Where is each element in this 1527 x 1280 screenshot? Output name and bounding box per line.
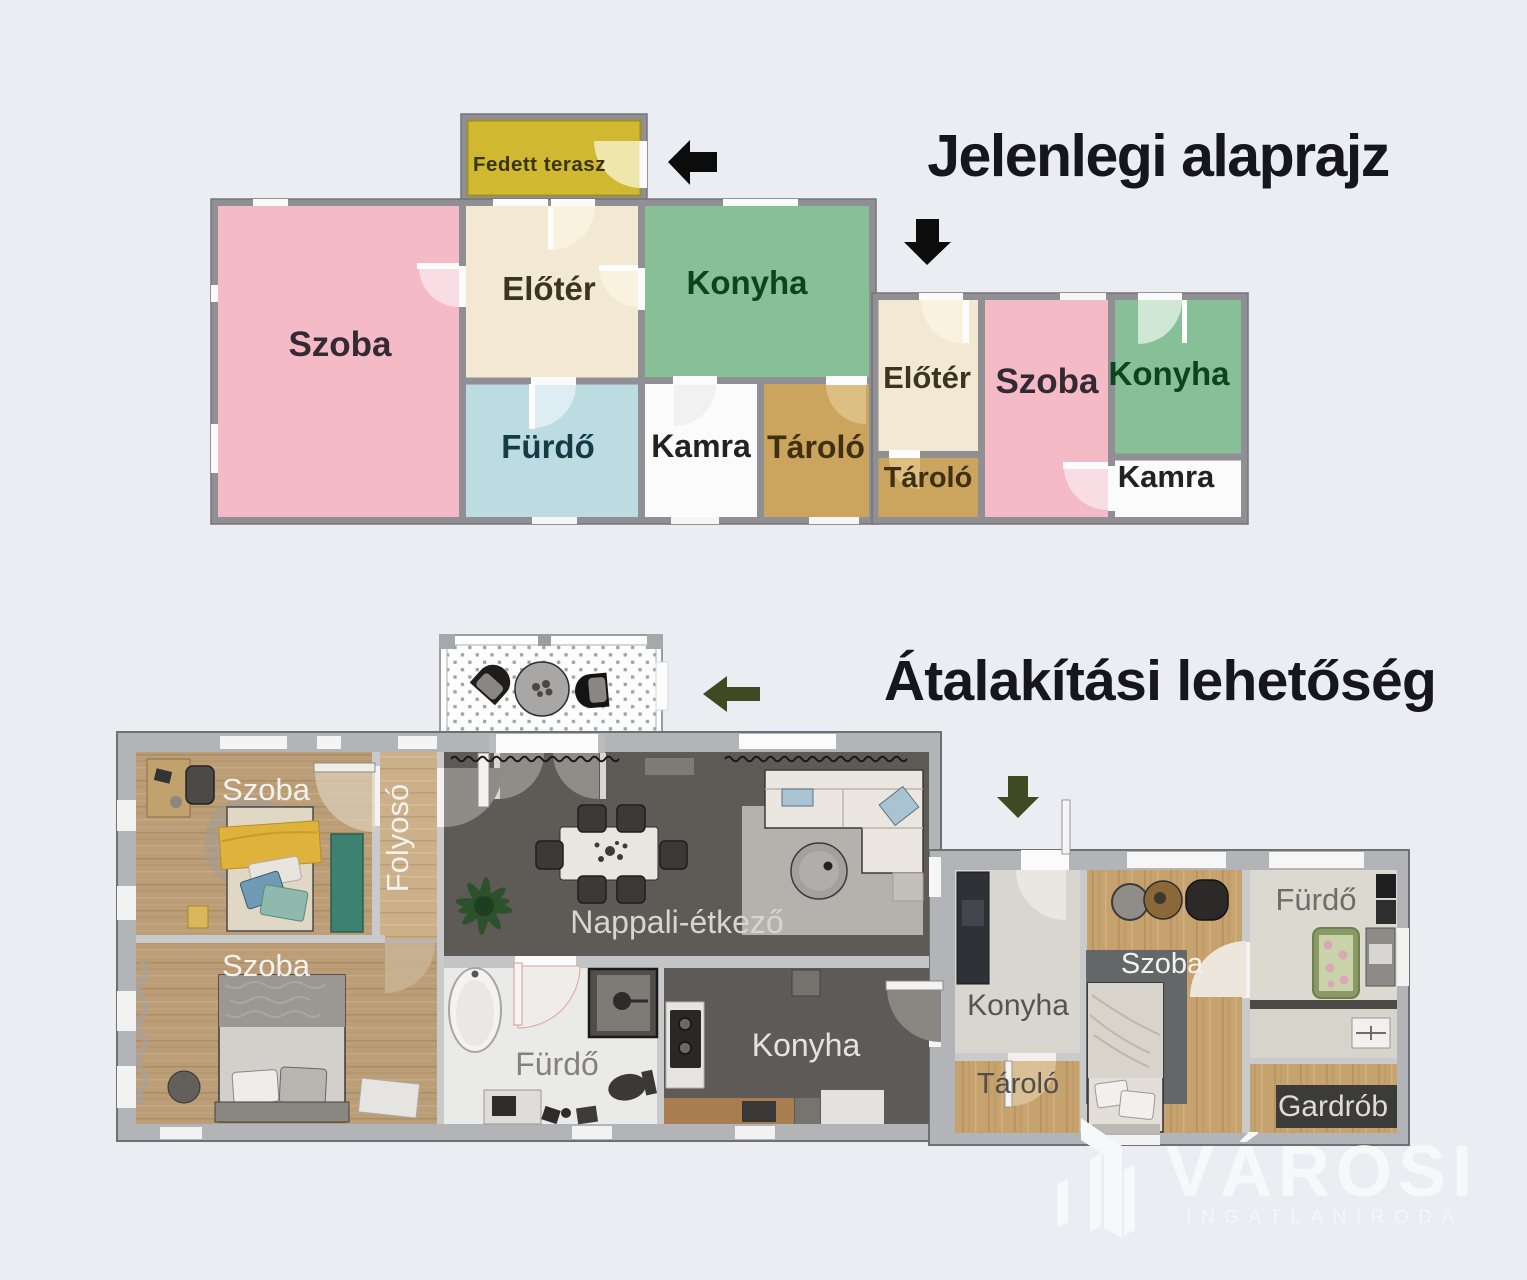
svg-text:Konyha: Konyha [1108,355,1230,392]
svg-text:Folyosó: Folyosó [380,784,415,893]
svg-text:VÁROSI: VÁROSI [1166,1132,1478,1212]
svg-text:Konyha: Konyha [967,989,1069,1022]
svg-text:INGATLANIRODA: INGATLANIRODA [1186,1207,1463,1228]
svg-text:Fürdő: Fürdő [501,428,594,465]
svg-text:Kamra: Kamra [651,428,751,464]
svg-text:Gardrób: Gardrób [1278,1090,1388,1123]
svg-text:Szoba: Szoba [288,325,392,364]
svg-text:Tároló: Tároló [884,462,973,494]
svg-text:Szoba: Szoba [1121,948,1204,980]
svg-text:Tároló: Tároló [977,1068,1059,1100]
svg-text:Nappali-étkező: Nappali-étkező [570,904,783,940]
svg-text:Konyha: Konyha [752,1027,861,1063]
svg-text:Szoba: Szoba [995,362,1099,401]
svg-text:Előtér: Előtér [883,360,971,395]
svg-text:Tároló: Tároló [767,429,865,465]
svg-text:Fürdő: Fürdő [515,1046,599,1082]
svg-text:Előtér: Előtér [502,270,596,307]
svg-text:Fedett terasz: Fedett terasz [473,153,606,176]
svg-text:Fürdő: Fürdő [1276,882,1357,917]
svg-text:Átalakítási lehetőség: Átalakítási lehetőség [884,649,1436,713]
svg-text:Szoba: Szoba [222,772,311,807]
svg-text:Kamra: Kamra [1118,459,1215,494]
svg-text:Szoba: Szoba [222,948,311,983]
svg-text:Konyha: Konyha [686,264,808,301]
svg-text:Jelenlegi alaprajz: Jelenlegi alaprajz [927,123,1389,189]
